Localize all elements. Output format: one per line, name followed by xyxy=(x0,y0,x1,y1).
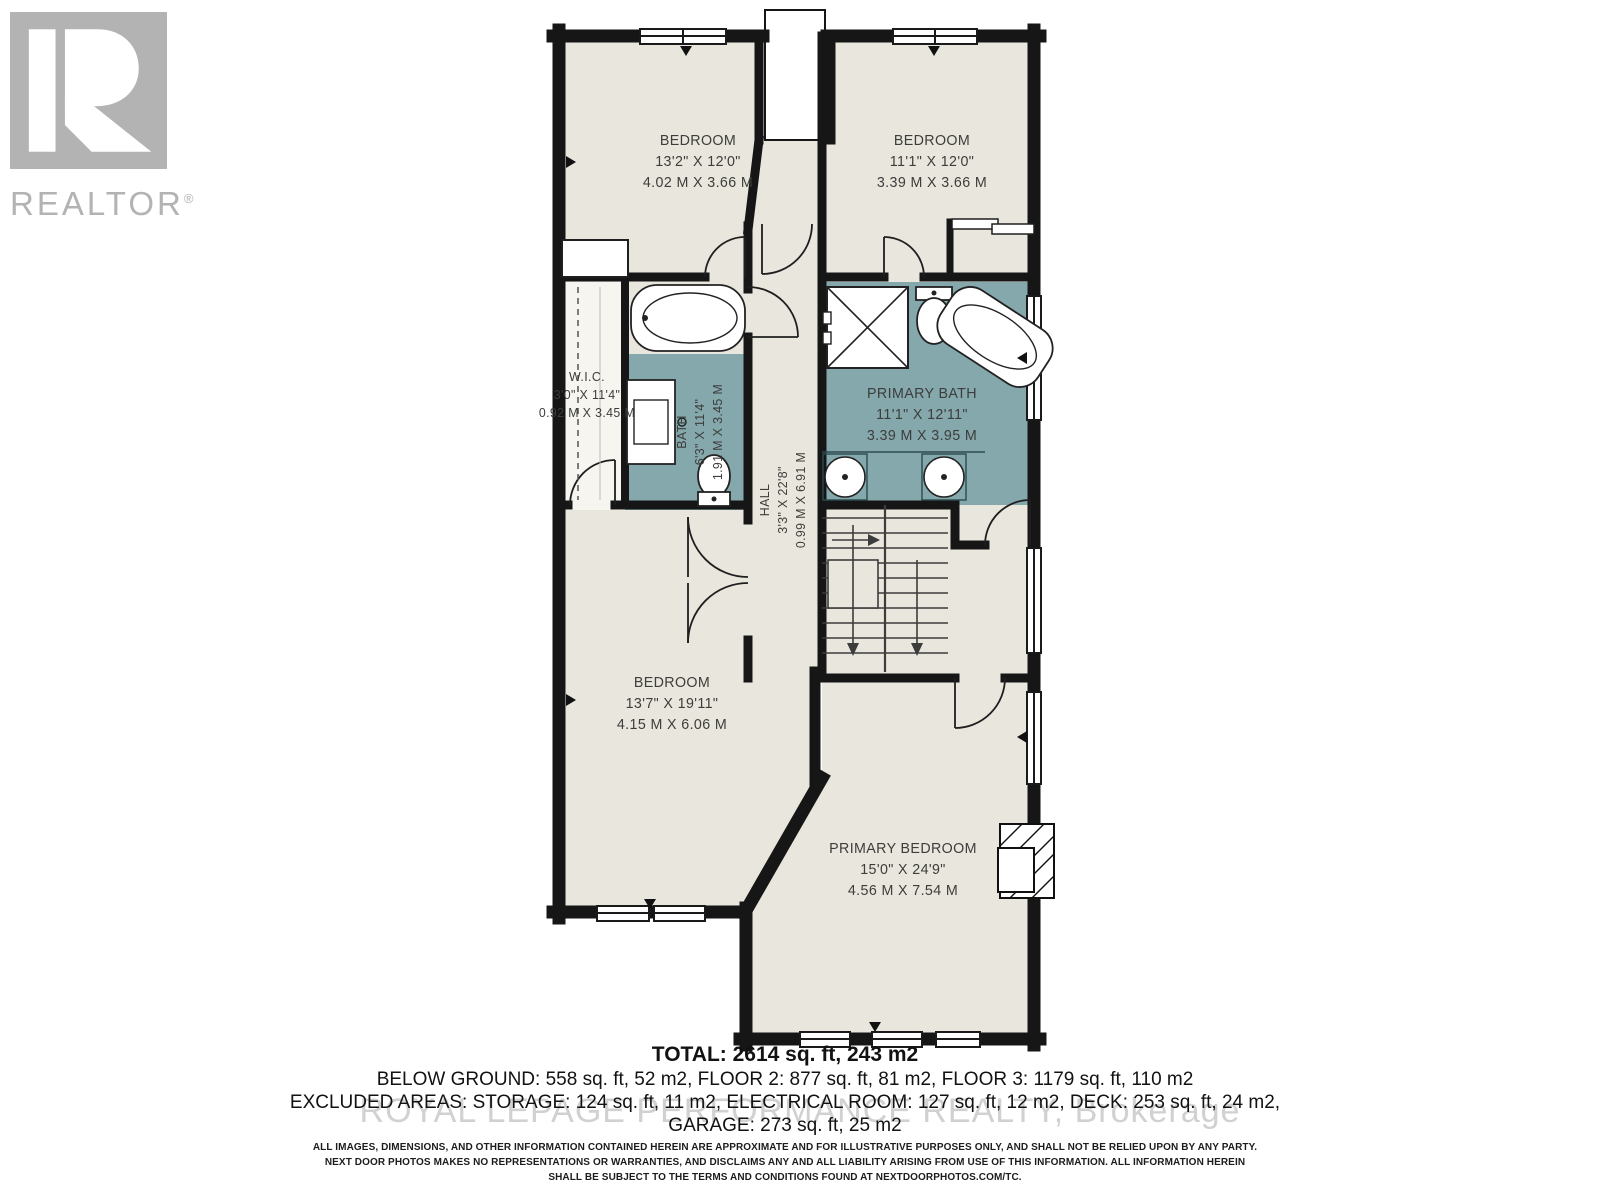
room-dim-metric: 4.02 M X 3.66 M xyxy=(584,172,812,193)
floorplan-page: REALTOR® BEDROOM 13'2" X 12'0" 4.02 M X … xyxy=(0,0,1600,1200)
room-dim-metric: 1.91 M X 3.45 M xyxy=(709,361,727,504)
room-label-hall: HALL 3'3" X 22'8" 0.99 M X 6.91 M xyxy=(756,419,810,581)
room-dim-imperial: 3'3" X 22'8" xyxy=(774,419,792,581)
room-dim-imperial: 11'1" X 12'11" xyxy=(808,404,1036,425)
disclaimer-line: ALL IMAGES, DIMENSIONS, AND OTHER INFORM… xyxy=(0,1140,1570,1155)
room-dim-metric: 4.56 M X 7.54 M xyxy=(789,880,1017,901)
room-label-wic: W.I.C. 3'0" X 11'4" 0.92 M X 3.45 M xyxy=(516,368,659,422)
room-name: HALL xyxy=(756,419,774,581)
room-name: BEDROOM xyxy=(558,672,786,693)
area-summary: TOTAL: 2614 sq. ft, 243 m2 BELOW GROUND:… xyxy=(0,1042,1570,1137)
room-name: PRIMARY BEDROOM xyxy=(789,838,1017,859)
total-area: TOTAL: 2614 sq. ft, 243 m2 xyxy=(0,1042,1570,1068)
room-name: BATH xyxy=(673,361,691,504)
bathtub-icon xyxy=(631,285,745,351)
room-dim-metric: 3.39 M X 3.95 M xyxy=(808,425,1036,446)
disclaimer-line: NEXT DOOR PHOTOS MAKES NO REPRESENTATION… xyxy=(0,1155,1570,1170)
room-dim-imperial: 13'7" X 19'11" xyxy=(558,693,786,714)
disclaimer-line: SHALL BE SUBJECT TO THE TERMS AND CONDIT… xyxy=(0,1170,1570,1185)
room-dim-imperial: 11'1" X 12'0" xyxy=(818,151,1046,172)
realtor-logo-word: REALTOR® xyxy=(10,185,210,223)
room-dim-imperial: 3'0" X 11'4" xyxy=(516,386,659,404)
room-label-primary-bath: PRIMARY BATH 11'1" X 12'11" 3.39 M X 3.9… xyxy=(808,383,1036,446)
realtor-logo: REALTOR® xyxy=(10,9,210,223)
room-dim-metric: 0.92 M X 3.45 M xyxy=(516,404,659,422)
room-name: BEDROOM xyxy=(818,130,1046,151)
room-label-bedroom-top-right: BEDROOM 11'1" X 12'0" 3.39 M X 3.66 M xyxy=(818,130,1046,193)
room-label-bedroom-top-left: BEDROOM 13'2" X 12'0" 4.02 M X 3.66 M xyxy=(584,130,812,193)
garage-area: GARAGE: 273 sq. ft, 25 m2 xyxy=(0,1114,1570,1137)
room-dim-imperial: 13'2" X 12'0" xyxy=(584,151,812,172)
room-name: W.I.C. xyxy=(516,368,659,386)
room-label-primary-bedroom: PRIMARY BEDROOM 15'0" X 24'9" 4.56 M X 7… xyxy=(789,838,1017,901)
excluded-areas: EXCLUDED AREAS: STORAGE: 124 sq. ft, 11 … xyxy=(0,1091,1570,1114)
room-dim-imperial: 15'0" X 24'9" xyxy=(789,859,1017,880)
realtor-logo-mark xyxy=(10,9,167,172)
disclaimer: ALL IMAGES, DIMENSIONS, AND OTHER INFORM… xyxy=(0,1140,1570,1185)
room-dim-metric: 4.15 M X 6.06 M xyxy=(558,714,786,735)
room-label-bedroom-lower: BEDROOM 13'7" X 19'11" 4.15 M X 6.06 M xyxy=(558,672,786,735)
closet-top-left-bedroom xyxy=(562,240,628,277)
room-name: BEDROOM xyxy=(584,130,812,151)
room-dim-imperial: 6'3" X 11'4" xyxy=(691,361,709,504)
room-dim-metric: 3.39 M X 3.66 M xyxy=(818,172,1046,193)
room-label-bath: BATH 6'3" X 11'4" 1.91 M X 3.45 M xyxy=(673,361,727,504)
room-name: PRIMARY BATH xyxy=(808,383,1036,404)
floor-areas: BELOW GROUND: 558 sq. ft, 52 m2, FLOOR 2… xyxy=(0,1068,1570,1091)
shower-icon xyxy=(823,287,908,368)
